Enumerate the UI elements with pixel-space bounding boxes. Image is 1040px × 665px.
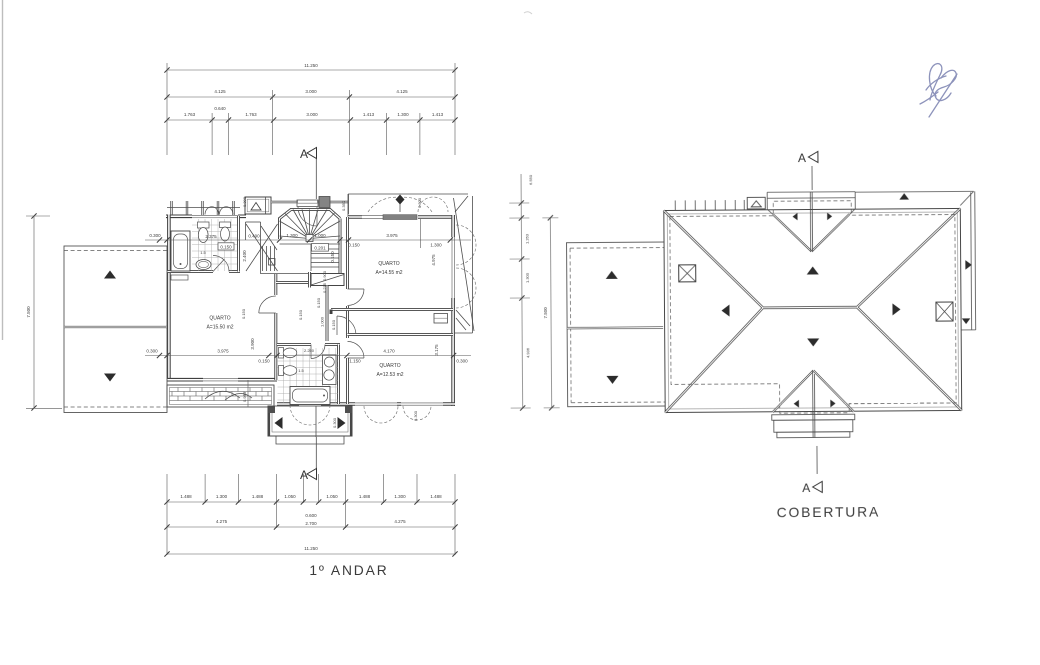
svg-text:QUARTO: QUARTO [209,316,230,322]
svg-text:0.300: 0.300 [413,410,418,421]
svg-text:1.000: 1.000 [320,316,325,327]
svg-text:A: A [300,468,308,482]
svg-text:COBERTURA: COBERTURA [777,505,881,521]
svg-text:0.300: 0.300 [456,359,468,364]
svg-text:1.488: 1.488 [180,494,192,499]
svg-text:0.350: 0.350 [341,200,346,211]
svg-text:1.488: 1.488 [252,494,264,499]
svg-text:1.150: 1.150 [349,359,361,364]
svg-text:2.400: 2.400 [242,250,247,262]
svg-text:1.488: 1.488 [430,494,442,499]
svg-text:1.763: 1.763 [245,112,257,117]
svg-text:7.500: 7.500 [26,306,31,318]
svg-text:7.500: 7.500 [543,307,548,319]
svg-text:0.201: 0.201 [314,246,326,251]
svg-text:3.975: 3.975 [386,233,398,238]
svg-text:0.150: 0.150 [316,297,321,308]
svg-text:4.975: 4.975 [431,254,436,266]
svg-text:1.5: 1.5 [298,368,304,373]
svg-text:0.150: 0.150 [258,359,270,364]
svg-text:1.050: 1.050 [326,494,338,499]
svg-text:1.000: 1.000 [314,233,326,238]
svg-text:0.150: 0.150 [330,251,335,263]
svg-text:2.375: 2.375 [205,234,217,239]
svg-text:2.700: 2.700 [305,521,317,526]
svg-text:0.150: 0.150 [298,309,303,320]
svg-text:3.900: 3.900 [250,338,255,350]
svg-text:1.5: 1.5 [200,250,206,255]
svg-text:0.300: 0.300 [146,349,158,354]
svg-text:QUARTO: QUARTO [379,363,400,369]
svg-text:A: A [798,151,806,165]
svg-text:0.900: 0.900 [322,270,327,281]
svg-text:3.000: 3.000 [306,112,318,117]
svg-text:1.300: 1.300 [397,112,409,117]
svg-text:4.275: 4.275 [216,519,228,524]
svg-text:1.413: 1.413 [363,112,375,117]
svg-text:6.550: 6.550 [528,174,533,185]
svg-text:A=15.50 m2: A=15.50 m2 [206,325,233,331]
svg-text:4.275: 4.275 [394,519,406,524]
svg-text:4.936: 4.936 [525,347,530,358]
svg-text:1.300: 1.300 [430,243,442,248]
svg-text:3.000: 3.000 [305,89,317,94]
svg-text:2.250: 2.250 [304,348,315,353]
svg-text:1.413: 1.413 [432,112,444,117]
svg-text:0.300: 0.300 [149,233,161,238]
svg-text:A: A [300,147,308,161]
svg-text:0.150: 0.150 [241,308,246,319]
svg-text:11.250: 11.250 [304,546,318,551]
svg-text:3.175: 3.175 [434,344,439,356]
svg-text:0.300: 0.300 [332,417,337,428]
svg-text:1.300: 1.300 [525,272,530,283]
svg-text:1.300: 1.300 [286,233,298,238]
svg-text:0.150: 0.150 [331,319,336,330]
svg-text:0.640: 0.640 [214,106,226,111]
svg-text:4.125: 4.125 [396,89,408,94]
svg-text:3.975: 3.975 [217,349,229,354]
svg-text:1.300: 1.300 [394,494,406,499]
svg-text:1.050: 1.050 [284,494,296,499]
svg-text:1.300: 1.300 [216,494,228,499]
svg-text:QUARTO: QUARTO [378,261,399,267]
svg-text:4.170: 4.170 [383,349,395,354]
svg-text:0.300: 0.300 [242,196,247,207]
svg-text:0.490: 0.490 [248,234,260,239]
svg-text:0.950: 0.950 [242,391,247,402]
svg-text:0.300: 0.300 [417,197,422,208]
svg-text:A=14.55 m2: A=14.55 m2 [375,270,402,276]
svg-text:0.150: 0.150 [220,244,232,249]
svg-text:1.488: 1.488 [359,494,371,499]
svg-text:4.125: 4.125 [214,89,226,94]
svg-text:1º ANDAR: 1º ANDAR [309,563,388,578]
svg-text:0.600: 0.600 [305,513,317,518]
svg-text:A=12.53 m2: A=12.53 m2 [376,372,403,378]
svg-text:1.263: 1.263 [524,233,529,244]
svg-text:1.763: 1.763 [184,112,196,117]
svg-text:A: A [802,481,810,495]
svg-text:0.275: 0.275 [322,282,327,293]
svg-text:0.150: 0.150 [348,243,360,248]
svg-text:11.250: 11.250 [304,63,318,68]
